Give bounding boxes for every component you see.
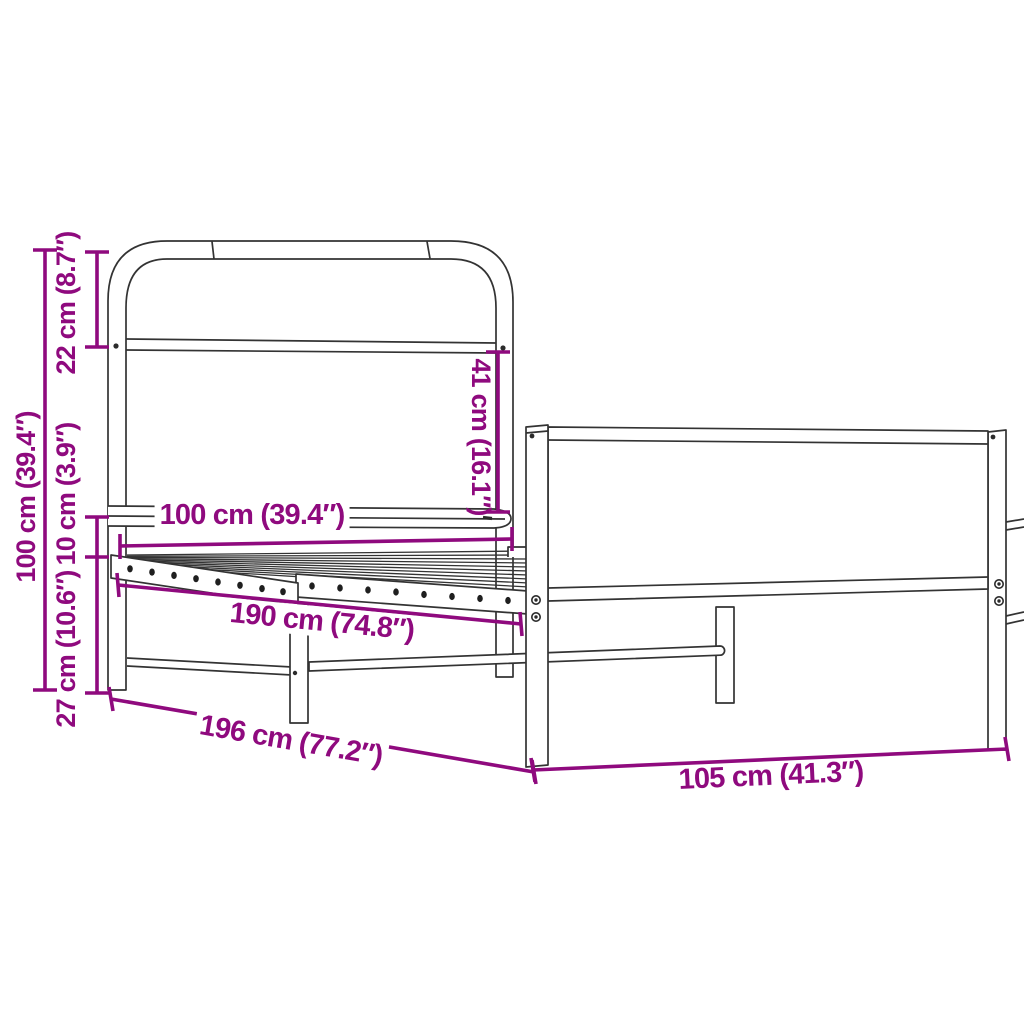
dim-headboard-top-line (85, 252, 109, 347)
headboard-top-bar (113, 339, 505, 353)
bolt-dot (500, 345, 505, 350)
dimension-label-total-height: 100 cm (39.4″) (12, 411, 40, 582)
bed-frame-dimension-diagram: 100 cm (39.4″) 22 cm (8.7″) 10 cm (3.9″)… (0, 0, 1024, 1024)
dimension-label-headboard-panel-height: 41 cm (16.1″) (467, 358, 495, 515)
bolt-dot (991, 435, 996, 440)
footboard-panel (548, 427, 988, 601)
under-frame (127, 604, 725, 723)
dim-clearance-line (85, 557, 109, 693)
footboard-far-leg (988, 430, 1006, 750)
dimension-label-rail-height: 10 cm (3.9″) (52, 423, 80, 566)
headboard-brace (127, 658, 292, 675)
dim-rail-height-line (85, 517, 109, 557)
far-rail-stub (1006, 519, 1024, 624)
dimension-label-headboard-width: 100 cm (39.4″) (155, 500, 350, 530)
bolt-dot (113, 343, 118, 348)
dimension-label-clearance: 27 cm (10.6″) (52, 570, 80, 727)
center-brace (309, 646, 725, 671)
dimension-label-headboard-top: 22 cm (8.7″) (52, 232, 80, 375)
bolt-dot (293, 671, 297, 675)
footboard (548, 427, 1024, 750)
bolt-dot (530, 434, 535, 439)
